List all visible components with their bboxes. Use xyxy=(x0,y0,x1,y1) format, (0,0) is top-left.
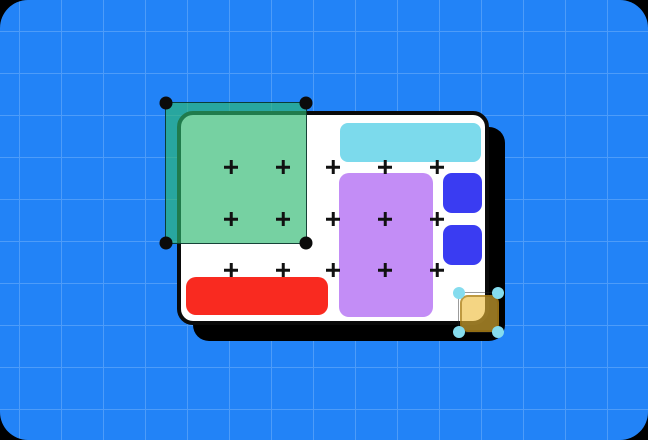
blue-square-top-shape[interactable] xyxy=(443,173,482,213)
selection-handle-bottom-left[interactable] xyxy=(453,326,465,338)
red-bar-shape[interactable] xyxy=(186,277,328,315)
selection-handle-top-right[interactable] xyxy=(300,97,313,110)
selection-handle-top-left[interactable] xyxy=(160,97,173,110)
selection-handle-bottom-left[interactable] xyxy=(160,237,173,250)
selection-handle-top-left[interactable] xyxy=(453,287,465,299)
selection-handle-bottom-right[interactable] xyxy=(492,326,504,338)
illustration-scene xyxy=(0,0,648,440)
selected-yellow-square-shape[interactable] xyxy=(460,295,499,332)
selection-handle-top-right[interactable] xyxy=(492,287,504,299)
selected-green-rectangle-shape[interactable] xyxy=(165,102,307,244)
blue-square-bottom-shape[interactable] xyxy=(443,225,482,265)
selection-handle-bottom-right[interactable] xyxy=(300,237,313,250)
selected-yellow-square-selection[interactable] xyxy=(458,292,499,333)
purple-rectangle-shape[interactable] xyxy=(339,173,433,317)
cyan-bar-shape[interactable] xyxy=(340,123,481,162)
canvas-background xyxy=(0,0,648,440)
